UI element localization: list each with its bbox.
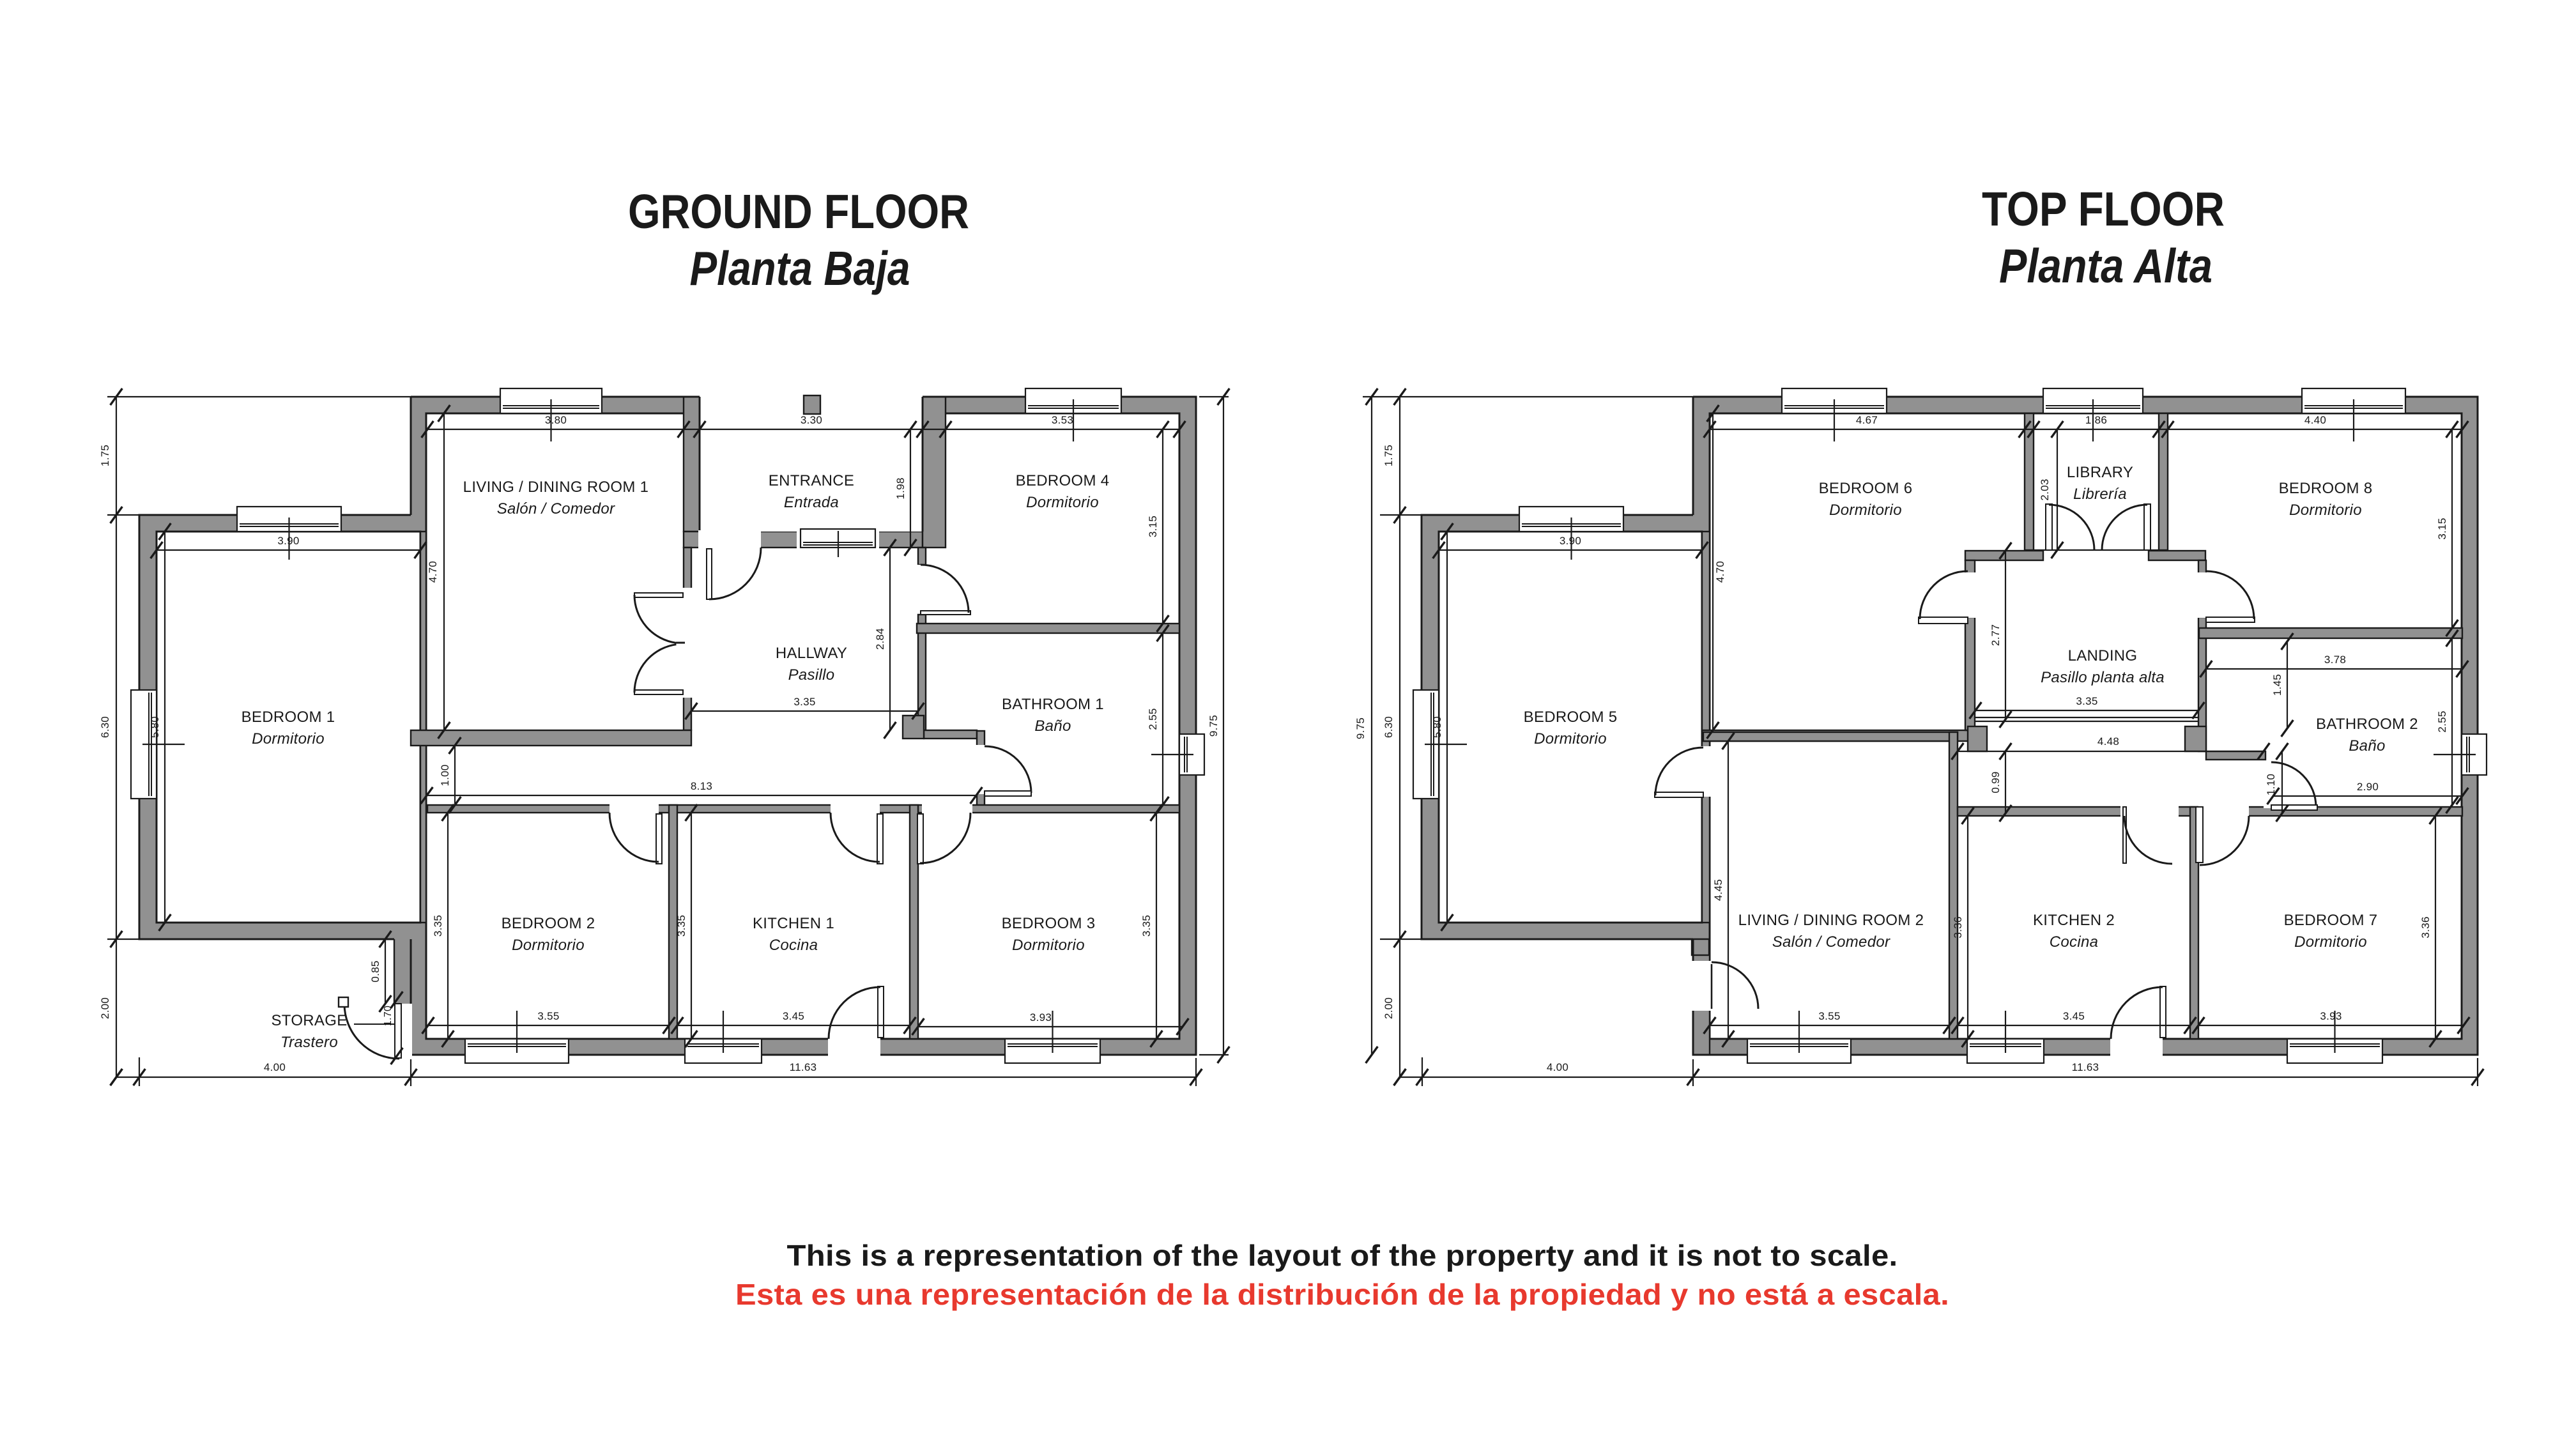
svg-text:3.36: 3.36 <box>2419 916 2432 938</box>
svg-text:3.35: 3.35 <box>793 696 815 708</box>
svg-text:2.00: 2.00 <box>99 997 111 1019</box>
svg-text:Planta Baja: Planta Baja <box>690 241 910 295</box>
svg-text:Dormitorio: Dormitorio <box>2294 933 2367 951</box>
svg-text:0.99: 0.99 <box>1989 771 2002 793</box>
svg-text:3.45: 3.45 <box>783 1010 804 1022</box>
svg-text:3.15: 3.15 <box>1147 516 1159 537</box>
svg-text:1.45: 1.45 <box>2271 674 2283 696</box>
svg-text:Dormitorio: Dormitorio <box>1829 502 1902 519</box>
svg-text:Dormitorio: Dormitorio <box>252 730 325 747</box>
svg-text:9.75: 9.75 <box>1354 717 1367 739</box>
svg-text:KITCHEN 1: KITCHEN 1 <box>753 915 834 932</box>
svg-text:BATHROOM 2: BATHROOM 2 <box>2316 716 2418 733</box>
svg-text:2.84: 2.84 <box>874 628 886 650</box>
svg-text:3.35: 3.35 <box>432 915 444 937</box>
svg-text:1.98: 1.98 <box>894 477 907 499</box>
svg-text:4.00: 4.00 <box>264 1061 286 1073</box>
svg-text:BEDROOM 8: BEDROOM 8 <box>2279 480 2373 497</box>
svg-text:1.86: 1.86 <box>2085 414 2107 426</box>
svg-text:Cocina: Cocina <box>769 937 818 954</box>
svg-text:3.55: 3.55 <box>1818 1010 1840 1022</box>
svg-text:This is a representation of th: This is a representation of the layout o… <box>787 1239 1898 1272</box>
svg-text:3.93: 3.93 <box>1030 1011 1052 1023</box>
svg-text:3.45: 3.45 <box>2063 1010 2085 1022</box>
svg-text:LIBRARY: LIBRARY <box>2067 464 2133 481</box>
svg-text:4.67: 4.67 <box>1856 414 1878 426</box>
svg-text:Entrada: Entrada <box>784 494 839 511</box>
svg-text:3.55: 3.55 <box>537 1010 559 1022</box>
svg-text:9.75: 9.75 <box>1207 715 1220 737</box>
svg-text:11.63: 11.63 <box>2072 1061 2099 1073</box>
svg-text:5.80: 5.80 <box>1431 716 1443 738</box>
svg-text:Pasillo: Pasillo <box>788 666 835 684</box>
svg-text:1.75: 1.75 <box>1383 445 1395 466</box>
svg-text:Dormitorio: Dormitorio <box>1012 937 1085 954</box>
svg-text:HALLWAY: HALLWAY <box>776 645 847 662</box>
svg-text:Salón / Comedor: Salón / Comedor <box>1772 933 1890 951</box>
svg-text:Trastero: Trastero <box>280 1034 338 1051</box>
svg-text:Salón / Comedor: Salón / Comedor <box>497 500 615 517</box>
svg-text:Dormitorio: Dormitorio <box>1026 494 1099 511</box>
svg-text:3.35: 3.35 <box>1140 915 1153 937</box>
svg-text:4.70: 4.70 <box>427 561 439 583</box>
svg-text:KITCHEN 2: KITCHEN 2 <box>2033 912 2115 929</box>
svg-text:3.30: 3.30 <box>801 414 822 426</box>
svg-text:3.78: 3.78 <box>2324 654 2346 666</box>
svg-text:GROUND FLOOR: GROUND FLOOR <box>628 185 969 238</box>
svg-text:BATHROOM 1: BATHROOM 1 <box>1002 696 1104 713</box>
svg-text:LIVING / DINING ROOM 1: LIVING / DINING ROOM 1 <box>463 479 649 496</box>
svg-text:ENTRANCE: ENTRANCE <box>769 472 854 489</box>
svg-text:3.93: 3.93 <box>2320 1010 2342 1022</box>
svg-text:Baño: Baño <box>2349 737 2385 755</box>
svg-text:BEDROOM 3: BEDROOM 3 <box>1002 915 1096 932</box>
svg-text:BEDROOM 4: BEDROOM 4 <box>1016 472 1110 489</box>
svg-text:4.48: 4.48 <box>2097 735 2119 747</box>
svg-text:BEDROOM 7: BEDROOM 7 <box>2284 912 2378 929</box>
svg-text:Esta es una representación de: Esta es una representación de la distrib… <box>735 1278 1949 1311</box>
svg-text:Dormitorio: Dormitorio <box>1534 730 1607 747</box>
svg-text:BEDROOM 2: BEDROOM 2 <box>502 915 595 932</box>
svg-text:3.15: 3.15 <box>2436 517 2448 539</box>
svg-text:2.55: 2.55 <box>1147 708 1159 730</box>
svg-text:Pasillo planta alta: Pasillo planta alta <box>2041 669 2165 686</box>
svg-text:4.70: 4.70 <box>1714 561 1726 583</box>
svg-text:1.70: 1.70 <box>383 1006 394 1026</box>
svg-text:BEDROOM 5: BEDROOM 5 <box>1524 709 1618 726</box>
svg-text:1.75: 1.75 <box>99 445 111 466</box>
svg-text:3.36: 3.36 <box>1952 916 1964 938</box>
svg-text:3.35: 3.35 <box>2076 695 2097 707</box>
svg-text:3.80: 3.80 <box>545 414 567 426</box>
svg-text:2.77: 2.77 <box>1989 624 2002 646</box>
svg-text:8.13: 8.13 <box>691 780 712 792</box>
svg-text:3.35: 3.35 <box>675 915 687 937</box>
svg-text:TOP FLOOR: TOP FLOOR <box>1982 182 2225 236</box>
svg-text:Cocina: Cocina <box>2050 933 2099 951</box>
svg-text:BEDROOM 1: BEDROOM 1 <box>241 709 335 726</box>
svg-text:3.90: 3.90 <box>277 535 299 547</box>
svg-text:STORAGE: STORAGE <box>271 1012 347 1029</box>
svg-text:4.45: 4.45 <box>1712 879 1724 901</box>
svg-text:LIVING / DINING ROOM 2: LIVING / DINING ROOM 2 <box>1738 912 1924 929</box>
svg-text:2.55: 2.55 <box>2436 710 2448 732</box>
svg-text:4.40: 4.40 <box>2304 414 2326 426</box>
svg-text:2.90: 2.90 <box>2357 781 2379 793</box>
svg-text:Librería: Librería <box>2073 486 2127 503</box>
svg-text:Baño: Baño <box>1034 717 1071 735</box>
svg-text:Planta Alta: Planta Alta <box>1999 239 2212 293</box>
svg-text:2.00: 2.00 <box>1383 997 1395 1019</box>
svg-text:5.80: 5.80 <box>149 716 161 738</box>
svg-text:3.53: 3.53 <box>1052 414 1073 426</box>
svg-text:Dormitorio: Dormitorio <box>2289 502 2362 519</box>
svg-text:3.90: 3.90 <box>1560 535 1581 547</box>
svg-text:LANDING: LANDING <box>2068 647 2138 664</box>
svg-text:4.00: 4.00 <box>1547 1061 1568 1073</box>
svg-text:1.00: 1.00 <box>439 764 451 786</box>
svg-text:BEDROOM 6: BEDROOM 6 <box>1819 480 1913 497</box>
svg-text:0.85: 0.85 <box>369 960 381 982</box>
svg-text:Dormitorio: Dormitorio <box>512 937 585 954</box>
svg-text:6.30: 6.30 <box>99 716 111 738</box>
svg-text:6.30: 6.30 <box>1383 716 1395 738</box>
svg-text:2.03: 2.03 <box>2039 479 2051 500</box>
svg-text:11.63: 11.63 <box>790 1061 817 1073</box>
